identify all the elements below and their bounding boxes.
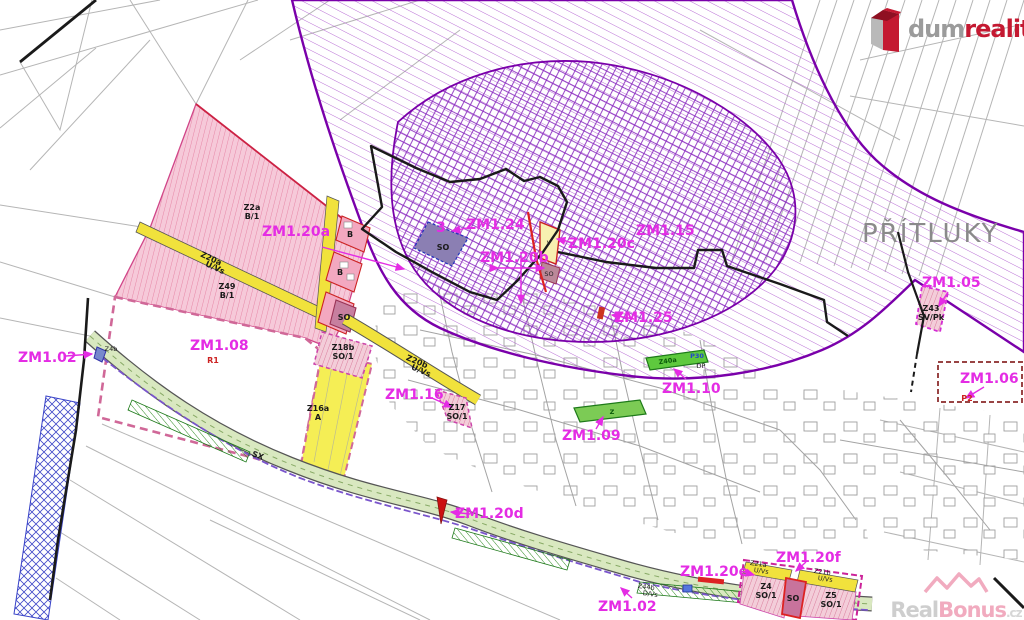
place-name: PŘÍTLUKY bbox=[862, 217, 1000, 249]
waterway-blue-hatch bbox=[14, 396, 80, 620]
zoning-map-screenshot: Z2a B/1 Z49 B/1 Z20a U/Vs Z20b U/Vs Z18b… bbox=[0, 0, 1024, 620]
label-z5: Z5 bbox=[825, 591, 837, 600]
change-label-zm115: ZM1.15 bbox=[636, 223, 695, 239]
change-label-zm120d: ZM1.20d bbox=[455, 506, 524, 522]
change-label-zm124: ZM1.24 bbox=[466, 217, 525, 233]
change-label-zm105: ZM1.05 bbox=[922, 275, 981, 291]
change-label-zm109: ZM1.09 bbox=[562, 428, 621, 444]
label-so-zm120c: SO bbox=[544, 270, 553, 278]
label-z5-use: SO/1 bbox=[820, 600, 841, 609]
label-v: V bbox=[547, 239, 552, 247]
label-z43-use: SV/Pk bbox=[918, 313, 945, 322]
map-canvas: Z2a B/1 Z49 B/1 Z20a U/Vs Z20b U/Vs Z18b… bbox=[0, 0, 1024, 620]
realbonus-watermark: RealBonus.cz bbox=[888, 572, 1024, 620]
realbonus-watermark-text: RealBonus.cz bbox=[888, 598, 1024, 620]
watermark-suffix: .cz bbox=[1006, 606, 1022, 620]
label-z: Z bbox=[610, 408, 615, 416]
label-z43: Z43 bbox=[923, 304, 940, 313]
label-z49: Z49 bbox=[219, 282, 236, 291]
change-label-zm102-left: ZM1.02 bbox=[18, 350, 77, 366]
label-z16a-use: A bbox=[315, 413, 322, 422]
label-so-zm124: SO bbox=[437, 243, 450, 252]
label-p30: P30 bbox=[690, 352, 704, 360]
logo-prefix: dum bbox=[908, 15, 964, 43]
label-z17: Z17 bbox=[449, 403, 466, 412]
label-so-cluster: SO bbox=[787, 594, 800, 603]
watermark-prefix: Real bbox=[890, 598, 938, 620]
change-label-zm120b: ZM1.20b bbox=[480, 250, 549, 266]
watermark-highlight: Bonus bbox=[938, 598, 1006, 620]
change-label-zm110: ZM1.10 bbox=[662, 381, 721, 397]
label-z18b-use: SO/1 bbox=[332, 352, 353, 361]
label-z18b: Z18b bbox=[332, 343, 355, 352]
label-b-2: B bbox=[337, 268, 343, 277]
label-z2a: Z2a bbox=[244, 203, 261, 212]
label-z4: Z4 bbox=[760, 582, 772, 591]
change-label-zm120a: ZM1.20a bbox=[262, 224, 330, 240]
label-dp: DP bbox=[697, 362, 706, 370]
change-label-zm102-bottom: ZM1.02 bbox=[598, 599, 657, 615]
label-p2: P2 bbox=[961, 394, 972, 403]
label-z16a: Z16a bbox=[307, 404, 329, 413]
label-z4-use: SO/1 bbox=[755, 591, 776, 600]
change-label-zm108: ZM1.08 bbox=[190, 338, 249, 354]
change-label-zm120e: ZM1.20e bbox=[680, 564, 748, 580]
label-so-blocks: SO bbox=[338, 313, 351, 322]
label-z2a-use: B/1 bbox=[245, 212, 260, 221]
logo-highlight: realit bbox=[964, 15, 1024, 43]
label-z4b: Z4b bbox=[105, 345, 118, 353]
label-b-1: B bbox=[347, 230, 353, 239]
dumrealit-logo-text: dumrealit.cz bbox=[908, 15, 1024, 43]
label-z17-use: SO/1 bbox=[446, 412, 467, 421]
change-label-zm120f: ZM1.20f bbox=[776, 550, 842, 566]
label-n3: 3 bbox=[436, 220, 446, 236]
realbonus-roofs-icon bbox=[921, 572, 991, 594]
dumrealit-logo: dumrealit.cz bbox=[868, 6, 1024, 52]
dumrealit-logo-icon bbox=[868, 6, 904, 52]
change-label-zm106: ZM1.06 bbox=[960, 371, 1019, 387]
change-label-zm120c: ZM1.20c bbox=[568, 236, 635, 252]
label-z49-use: B/1 bbox=[220, 291, 235, 300]
change-label-zm116: ZM1.16 bbox=[385, 387, 444, 403]
change-label-zm125: ZM1.25 bbox=[614, 310, 673, 326]
label-r1: R1 bbox=[207, 356, 219, 365]
label-z44b-use: D/Vs bbox=[642, 589, 659, 599]
